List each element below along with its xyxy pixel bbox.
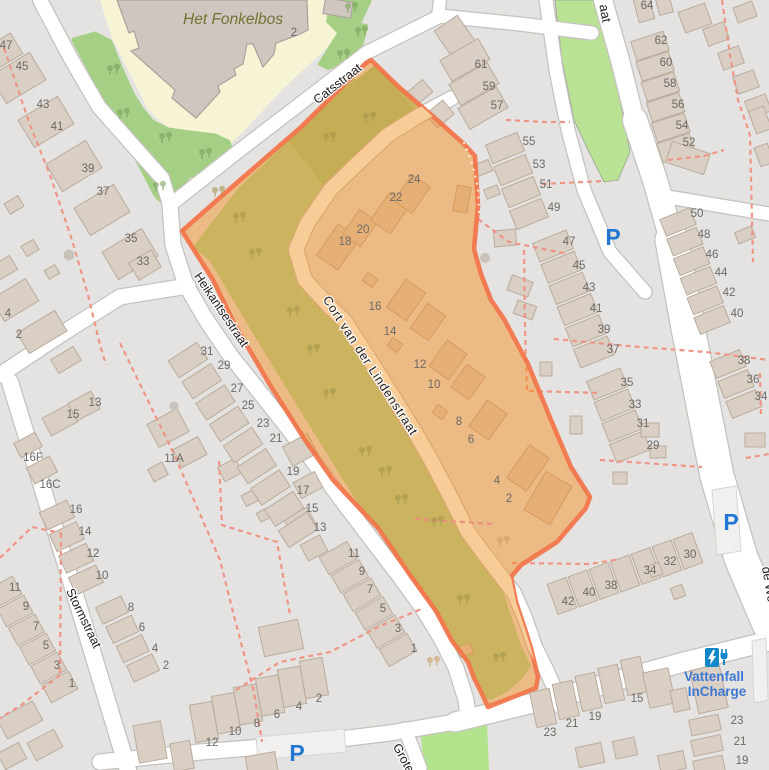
svg-text:12: 12: [87, 548, 100, 560]
svg-text:60: 60: [660, 57, 673, 69]
svg-text:Vattenfall: Vattenfall: [684, 669, 744, 684]
svg-text:5: 5: [43, 640, 49, 652]
svg-text:35: 35: [125, 233, 138, 245]
svg-text:35: 35: [621, 377, 634, 389]
svg-text:49: 49: [548, 202, 561, 214]
svg-text:11: 11: [348, 548, 360, 560]
svg-text:11: 11: [9, 582, 21, 594]
svg-text:aat: aat: [596, 3, 614, 24]
svg-text:45: 45: [16, 61, 29, 73]
svg-text:58: 58: [664, 78, 677, 90]
svg-text:4: 4: [152, 643, 159, 655]
svg-text:24: 24: [408, 174, 421, 186]
svg-text:23: 23: [544, 727, 557, 739]
svg-text:15: 15: [631, 693, 644, 705]
svg-text:39: 39: [598, 324, 611, 336]
svg-text:9: 9: [359, 566, 365, 578]
svg-text:InCharge: InCharge: [688, 684, 747, 699]
svg-text:47: 47: [0, 40, 12, 52]
svg-text:18: 18: [339, 236, 352, 248]
svg-text:16C: 16C: [39, 479, 60, 491]
svg-text:61: 61: [475, 59, 488, 71]
svg-text:48: 48: [698, 229, 711, 241]
svg-text:59: 59: [483, 81, 496, 93]
svg-text:21: 21: [566, 718, 579, 730]
svg-text:4: 4: [5, 308, 12, 320]
svg-text:40: 40: [583, 587, 596, 599]
svg-text:8: 8: [254, 718, 260, 730]
svg-text:38: 38: [605, 580, 618, 592]
svg-text:19: 19: [589, 711, 602, 723]
svg-text:2: 2: [163, 660, 169, 672]
svg-text:43: 43: [583, 282, 596, 294]
svg-text:9: 9: [23, 601, 29, 613]
svg-text:13: 13: [89, 397, 102, 409]
svg-text:12: 12: [414, 359, 427, 371]
svg-text:38: 38: [738, 355, 751, 367]
svg-text:29: 29: [647, 440, 660, 452]
svg-text:2: 2: [16, 329, 22, 341]
svg-text:1: 1: [411, 643, 417, 655]
svg-text:41: 41: [51, 121, 64, 133]
svg-text:64: 64: [641, 0, 654, 12]
svg-text:52: 52: [683, 137, 696, 149]
svg-text:6: 6: [468, 434, 474, 446]
svg-text:2: 2: [316, 693, 322, 705]
svg-text:33: 33: [137, 256, 150, 268]
svg-text:29: 29: [218, 360, 231, 372]
svg-text:50: 50: [691, 208, 704, 220]
svg-text:32: 32: [664, 556, 677, 568]
svg-text:23: 23: [257, 418, 270, 430]
svg-text:37: 37: [97, 186, 110, 198]
svg-text:37: 37: [607, 344, 620, 356]
svg-text:8: 8: [128, 602, 134, 614]
svg-text:P: P: [605, 224, 620, 250]
svg-text:15: 15: [67, 409, 80, 421]
svg-text:12: 12: [206, 737, 219, 749]
svg-text:15: 15: [306, 503, 319, 515]
svg-text:21: 21: [734, 736, 747, 748]
svg-text:11A: 11A: [164, 453, 184, 465]
svg-text:54: 54: [676, 120, 689, 132]
svg-text:3: 3: [54, 660, 60, 672]
svg-text:1: 1: [69, 678, 75, 690]
svg-text:41: 41: [590, 303, 603, 315]
svg-text:14: 14: [384, 326, 397, 338]
svg-text:51: 51: [540, 179, 553, 191]
svg-text:6: 6: [139, 622, 145, 634]
svg-text:44: 44: [715, 267, 728, 279]
svg-text:6: 6: [274, 709, 280, 721]
svg-text:10: 10: [229, 726, 242, 738]
svg-text:36: 36: [747, 374, 760, 386]
svg-text:4: 4: [494, 475, 501, 487]
svg-text:40: 40: [731, 308, 744, 320]
svg-text:10: 10: [96, 570, 109, 582]
svg-text:5: 5: [380, 603, 386, 615]
svg-text:13: 13: [314, 522, 327, 534]
svg-text:3: 3: [395, 623, 401, 635]
svg-text:45: 45: [573, 260, 586, 272]
svg-text:25: 25: [242, 400, 255, 412]
svg-text:Het Fonkelbos: Het Fonkelbos: [183, 11, 283, 28]
svg-text:55: 55: [523, 136, 536, 148]
svg-text:42: 42: [723, 287, 736, 299]
svg-text:22: 22: [390, 192, 403, 204]
svg-text:10: 10: [428, 379, 441, 391]
svg-text:17: 17: [297, 485, 310, 497]
svg-text:4: 4: [296, 701, 303, 713]
svg-text:2: 2: [291, 27, 297, 39]
svg-text:14: 14: [79, 526, 92, 538]
svg-text:P: P: [723, 509, 738, 535]
svg-text:16: 16: [70, 504, 83, 516]
svg-text:31: 31: [201, 346, 214, 358]
svg-text:16: 16: [369, 301, 382, 313]
svg-text:16F: 16F: [23, 452, 43, 464]
svg-text:23: 23: [731, 715, 744, 727]
svg-text:21: 21: [270, 433, 283, 445]
svg-text:62: 62: [655, 35, 668, 47]
svg-text:31: 31: [637, 418, 650, 430]
svg-text:20: 20: [357, 224, 370, 236]
svg-text:43: 43: [37, 99, 50, 111]
svg-text:2: 2: [506, 493, 512, 505]
svg-text:27: 27: [231, 383, 244, 395]
svg-text:42: 42: [562, 596, 575, 608]
svg-text:34: 34: [755, 391, 768, 403]
svg-text:39: 39: [82, 163, 95, 175]
svg-text:34: 34: [644, 565, 657, 577]
svg-text:57: 57: [491, 100, 504, 112]
svg-text:53: 53: [533, 159, 546, 171]
svg-text:7: 7: [367, 584, 373, 596]
svg-text:56: 56: [672, 99, 685, 111]
svg-text:33: 33: [629, 399, 642, 411]
svg-text:P: P: [289, 740, 304, 766]
svg-text:19: 19: [287, 466, 300, 478]
svg-text:46: 46: [706, 249, 719, 261]
svg-text:7: 7: [33, 621, 39, 633]
svg-text:19: 19: [736, 755, 749, 767]
svg-text:8: 8: [456, 416, 462, 428]
svg-text:30: 30: [684, 549, 697, 561]
svg-text:47: 47: [563, 236, 576, 248]
